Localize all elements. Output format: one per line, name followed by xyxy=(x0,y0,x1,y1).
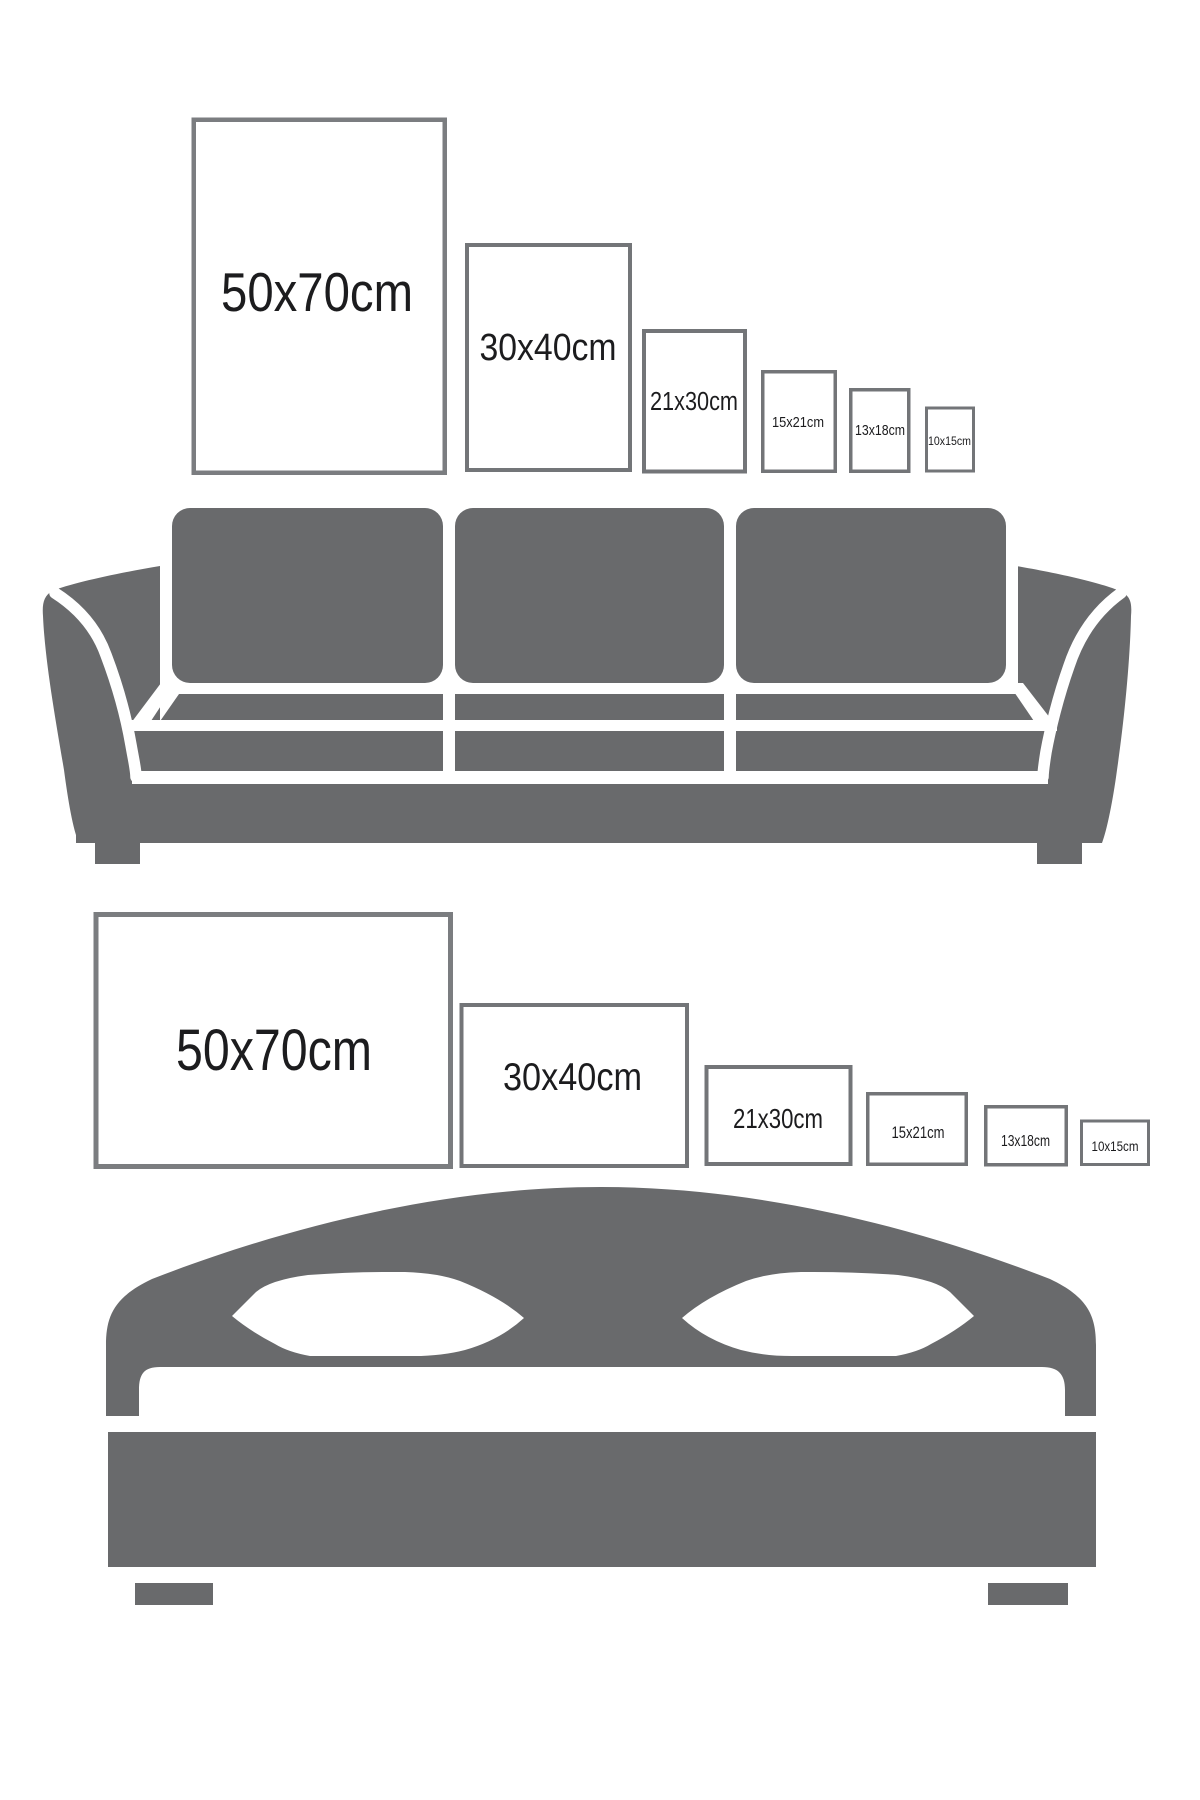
svg-text:15x21cm: 15x21cm xyxy=(892,1123,945,1142)
svg-text:21x30cm: 21x30cm xyxy=(733,1103,823,1134)
svg-text:30x40cm: 30x40cm xyxy=(503,1056,642,1099)
svg-text:13x18cm: 13x18cm xyxy=(855,423,905,439)
svg-text:50x70cm: 50x70cm xyxy=(176,1018,372,1083)
svg-text:21x30cm: 21x30cm xyxy=(650,388,738,416)
svg-text:50x70cm: 50x70cm xyxy=(221,261,413,323)
svg-text:13x18cm: 13x18cm xyxy=(1001,1133,1050,1150)
svg-text:15x21cm: 15x21cm xyxy=(772,414,824,431)
svg-text:30x40cm: 30x40cm xyxy=(480,327,617,369)
svg-text:10x15cm: 10x15cm xyxy=(928,434,971,448)
svg-text:10x15cm: 10x15cm xyxy=(1092,1138,1139,1154)
